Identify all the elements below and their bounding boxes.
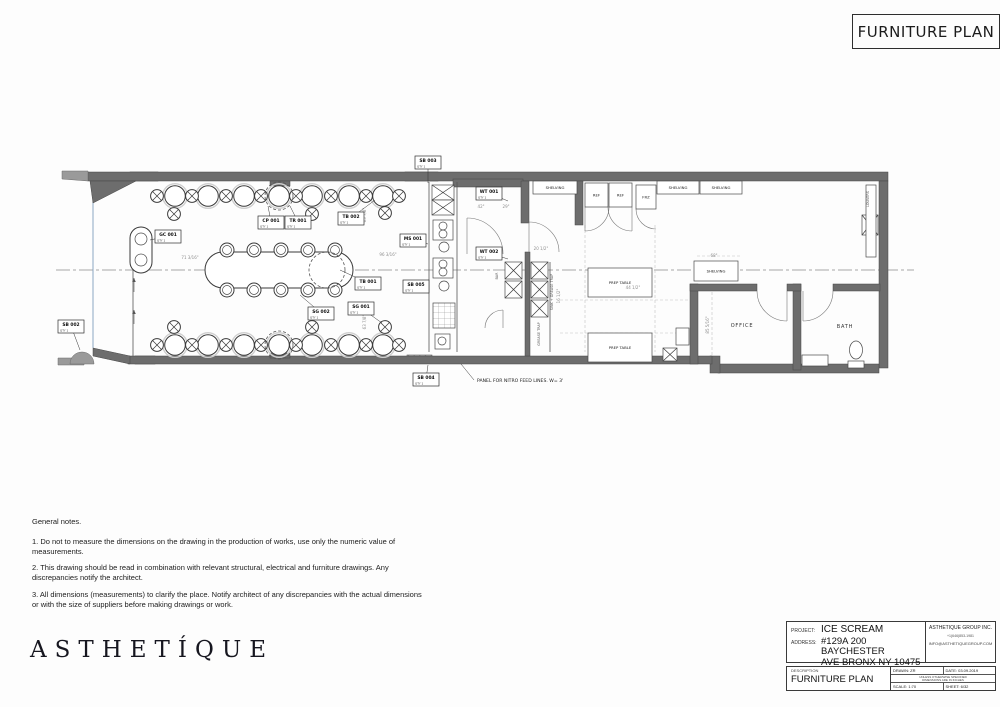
svg-text:QTY 1: QTY 1 (405, 289, 414, 293)
note-item: 1. Do not to measure the dimensions on t… (32, 537, 424, 557)
address-label: ADDRESS: (791, 640, 821, 646)
description-label: DESCRIPTION (791, 668, 890, 673)
asthetique-logo: ASTHETÍQUE (30, 637, 274, 663)
general-notes: General notes. 1. Do not to measure the … (32, 517, 424, 616)
title-block-project-left: PROJECT: ICE SCREAM ADDRESS: #129A 200 B… (787, 622, 926, 662)
svg-text:68": 68" (711, 253, 718, 258)
svg-text:QTY 1: QTY 1 (478, 196, 487, 200)
svg-text:QTY 1: QTY 1 (310, 316, 319, 320)
svg-text:FRZ: FRZ (642, 195, 650, 200)
svg-text:QTY 1: QTY 1 (340, 221, 349, 225)
svg-text:TB 001: TB 001 (359, 279, 376, 285)
svg-text:TR 001: TR 001 (289, 218, 306, 224)
title-block-project: PROJECT: ICE SCREAM ADDRESS: #129A 200 B… (786, 621, 996, 663)
svg-text:LOUVERS: LOUVERS (866, 191, 870, 207)
svg-text:SG 001: SG 001 (352, 304, 369, 310)
svg-text:REF: REF (617, 193, 624, 198)
svg-text:QTY 1: QTY 1 (417, 165, 426, 169)
company-email: INFO@ASTHETIQUEGROUP.COM (926, 641, 995, 646)
description-cell: DESCRIPTION FURNITURE PLAN (787, 667, 891, 690)
drawing-sheet: SHELVINGSHELVINGSHELVINGSHELVINGREFREFFR… (0, 0, 1000, 707)
svg-text:WT 002: WT 002 (480, 249, 499, 255)
svg-text:PREP TABLE: PREP TABLE (609, 345, 632, 350)
svg-text:SHELVING: SHELVING (707, 269, 726, 274)
svg-text:96 3/16": 96 3/16" (379, 252, 396, 257)
svg-text:GREASE TRAP: GREASE TRAP (537, 322, 541, 345)
description-value: FURNITURE PLAN (791, 674, 890, 685)
svg-text:QTY 1: QTY 1 (357, 286, 366, 290)
notes-heading: General notes. (32, 517, 424, 527)
svg-text:QTY 1: QTY 1 (157, 239, 166, 243)
svg-text:63 7/8": 63 7/8" (362, 315, 367, 330)
svg-text:71 3/16": 71 3/16" (181, 255, 198, 260)
disclaimer: UNLESS OTHERWISE SPECIFIED DIMENSIONS AR… (891, 675, 995, 683)
disclaimer-line2: DIMENSIONS ARE IN INCHES (922, 678, 964, 682)
svg-text:SHELVING: SHELVING (712, 185, 731, 190)
svg-text:MS 001: MS 001 (404, 236, 422, 242)
svg-text:29": 29" (503, 204, 510, 209)
project-label: PROJECT: (791, 628, 821, 634)
company-name: ASTHETIQUE GROUP INC. (926, 625, 995, 631)
date-cell: DATE: 03.09.2019 (943, 667, 996, 674)
construction-lines-layer (56, 181, 914, 360)
svg-text:PANEL FOR NITRO FEED LINES. W=: PANEL FOR NITRO FEED LINES. W= 3' (477, 378, 563, 384)
note-item: 2. This drawing should be read in combin… (32, 563, 424, 583)
svg-text:SB 002: SB 002 (62, 322, 79, 328)
svg-text:REF: REF (593, 193, 600, 198)
svg-text:QTY 1: QTY 1 (415, 382, 424, 386)
svg-text:QTY 1: QTY 1 (350, 311, 359, 315)
address-line1: #129A 200 BAYCHESTER (821, 636, 885, 657)
scale-cell: SCALE: 1:70 (891, 683, 943, 690)
drawn-cell: DRAWN: ZR (891, 667, 943, 674)
svg-text:BATH: BATH (837, 324, 853, 330)
svg-text:GC 001: GC 001 (159, 232, 177, 238)
svg-text:TB 002: TB 002 (342, 214, 359, 220)
svg-text:16 1/2": 16 1/2" (556, 289, 561, 304)
title-block-description: DESCRIPTION FURNITURE PLAN DRAWN: ZR DAT… (786, 666, 996, 691)
svg-text:QTY 1: QTY 1 (260, 225, 269, 229)
svg-text:QTY 1: QTY 1 (402, 243, 411, 247)
svg-text:QTY 1: QTY 1 (287, 225, 296, 229)
svg-text:SB 003: SB 003 (419, 158, 436, 164)
svg-text:SG 002: SG 002 (312, 309, 329, 315)
drawing-meta-grid: DRAWN: ZR DATE: 03.09.2019 UNLESS OTHERW… (891, 667, 995, 690)
svg-text:SB 004: SB 004 (417, 375, 434, 381)
svg-text:SINK + GREASE TRAP: SINK + GREASE TRAP (550, 274, 554, 310)
address-value: #129A 200 BAYCHESTER AVE BRONX NY 10475 (821, 637, 925, 668)
sheet-title-text: FURNITURE PLAN (858, 23, 995, 41)
title-block-company: ASTHETIQUE GROUP INC. +1(646)853-1981 IN… (926, 622, 995, 662)
svg-text:QTY 1: QTY 1 (478, 256, 487, 260)
sheet-title-box: FURNITURE PLAN (852, 14, 1000, 49)
svg-text:OFFICE: OFFICE (731, 323, 754, 329)
svg-text:42": 42" (478, 204, 485, 209)
svg-text:85 5/16": 85 5/16" (705, 316, 710, 333)
sheet-cell: SHEET: 6/32 (943, 683, 996, 690)
svg-text:BAR: BAR (495, 272, 499, 280)
svg-text:SHELVING: SHELVING (669, 185, 688, 190)
svg-text:CP 001: CP 001 (262, 218, 279, 224)
svg-text:QTY 1: QTY 1 (60, 329, 69, 333)
svg-text:44 1/2": 44 1/2" (626, 285, 641, 290)
company-phone: +1(646)853-1981 (926, 634, 995, 638)
svg-text:WT 001: WT 001 (480, 189, 499, 195)
svg-text:SHELVING: SHELVING (546, 185, 565, 190)
svg-text:20 1/2": 20 1/2" (534, 246, 549, 251)
project-value: ICE SCREAM (821, 624, 883, 635)
note-item: 3. All dimensions (measurements) to clar… (32, 590, 424, 610)
svg-text:SB 005: SB 005 (407, 282, 424, 288)
